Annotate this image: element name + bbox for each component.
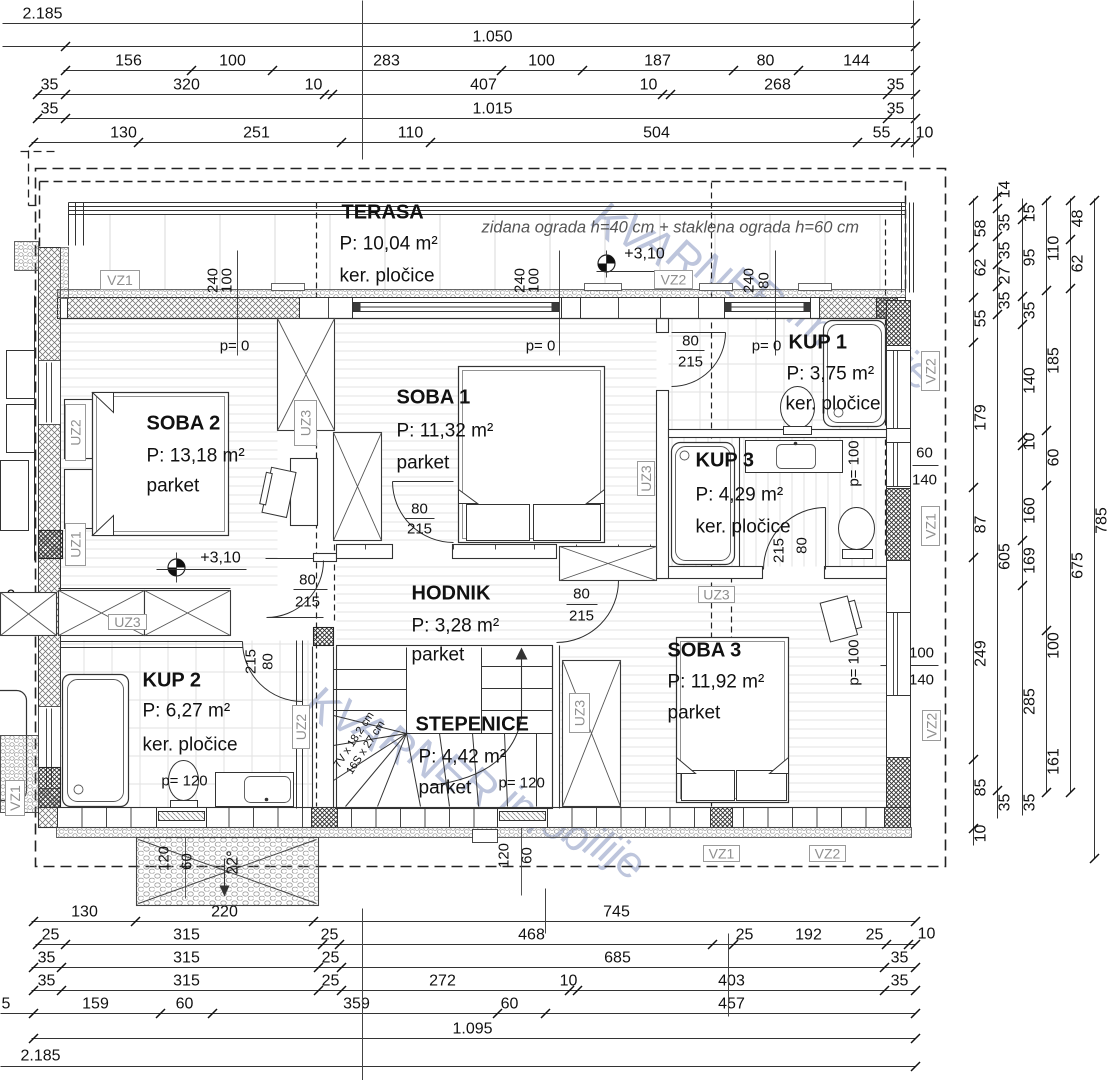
svg-text:80: 80 <box>573 586 590 603</box>
svg-text:KUP 3: KUP 3 <box>696 450 755 472</box>
svg-text:2.185: 2.185 <box>21 1048 61 1065</box>
svg-text:p= 100: p= 100 <box>846 639 863 685</box>
svg-text:315: 315 <box>173 927 200 944</box>
svg-text:HODNIK: HODNIK <box>412 583 491 605</box>
svg-text:STEPENICE: STEPENICE <box>416 714 529 736</box>
svg-text:100: 100 <box>219 53 246 70</box>
svg-text:P: 6,27 m²: P: 6,27 m² <box>143 701 231 722</box>
svg-text:130: 130 <box>110 125 137 142</box>
svg-text:215: 215 <box>243 649 260 674</box>
svg-text:25: 25 <box>42 927 60 944</box>
svg-text:35: 35 <box>891 950 909 967</box>
svg-text:60: 60 <box>519 847 536 864</box>
svg-text:22°: 22° <box>225 850 242 874</box>
svg-text:10: 10 <box>1022 433 1039 451</box>
svg-text:100: 100 <box>909 645 934 662</box>
svg-text:25: 25 <box>736 927 754 944</box>
svg-text:87: 87 <box>973 516 990 534</box>
svg-text:60: 60 <box>179 853 196 870</box>
svg-text:272: 272 <box>429 973 456 990</box>
svg-text:403: 403 <box>718 973 745 990</box>
svg-text:UZ3: UZ3 <box>703 587 730 603</box>
svg-text:675: 675 <box>1070 552 1087 579</box>
svg-text:100: 100 <box>528 53 555 70</box>
svg-text:1.015: 1.015 <box>472 101 512 118</box>
svg-text:parket: parket <box>419 778 473 799</box>
svg-text:UZ3: UZ3 <box>298 410 314 437</box>
svg-text:10: 10 <box>973 825 990 843</box>
svg-text:80: 80 <box>299 572 316 589</box>
svg-text:100: 100 <box>219 268 236 293</box>
svg-text:UZ1: UZ1 <box>68 531 84 558</box>
svg-text:160: 160 <box>1022 497 1039 524</box>
svg-text:407: 407 <box>470 77 497 94</box>
svg-text:27: 27 <box>997 267 1014 285</box>
svg-text:P: 4,29 m²: P: 4,29 m² <box>696 485 784 506</box>
svg-text:315: 315 <box>173 973 200 990</box>
svg-text:14: 14 <box>997 181 1014 199</box>
svg-text:+3,10: +3,10 <box>200 550 241 567</box>
svg-text:10: 10 <box>918 926 936 943</box>
svg-text:VZ1: VZ1 <box>7 785 23 811</box>
svg-text:VZ1: VZ1 <box>107 272 133 288</box>
svg-text:VZ2: VZ2 <box>661 272 687 288</box>
svg-text:169: 169 <box>1022 547 1039 574</box>
svg-text:P: 11,92 m²: P: 11,92 m² <box>668 672 765 693</box>
svg-text:ker. pločice: ker. pločice <box>340 266 435 287</box>
svg-text:ker. pločice: ker. pločice <box>143 735 238 756</box>
svg-text:100: 100 <box>1046 632 1063 659</box>
svg-text:80: 80 <box>411 501 428 518</box>
svg-text:80: 80 <box>756 272 773 289</box>
svg-text:TERASA: TERASA <box>342 202 424 224</box>
svg-text:283: 283 <box>373 53 400 70</box>
svg-text:35: 35 <box>997 794 1014 812</box>
svg-text:130: 130 <box>71 904 98 921</box>
svg-text:UZ3: UZ3 <box>638 465 654 492</box>
svg-text:P: 3,75 m²: P: 3,75 m² <box>787 364 875 385</box>
svg-text:785: 785 <box>1094 507 1111 534</box>
svg-text:p= 0: p= 0 <box>220 338 250 355</box>
svg-text:KUP 2: KUP 2 <box>143 670 202 692</box>
svg-text:35: 35 <box>38 973 56 990</box>
svg-text:25: 25 <box>322 973 340 990</box>
svg-text:144: 144 <box>843 53 870 70</box>
svg-text:UZ2: UZ2 <box>68 419 84 446</box>
svg-text:25: 25 <box>866 927 884 944</box>
svg-text:P: 3,28 m²: P: 3,28 m² <box>412 616 500 637</box>
svg-text:468: 468 <box>518 927 545 944</box>
svg-text:35: 35 <box>41 101 59 118</box>
svg-text:320: 320 <box>173 77 200 94</box>
svg-text:215: 215 <box>569 608 594 625</box>
svg-text:VZ2: VZ2 <box>815 846 841 862</box>
svg-text:10: 10 <box>916 125 934 142</box>
svg-text:ker. pločice: ker. pločice <box>786 394 881 415</box>
svg-text:120: 120 <box>156 846 173 871</box>
svg-text:10: 10 <box>640 77 658 94</box>
svg-text:745: 745 <box>603 904 630 921</box>
svg-text:100: 100 <box>526 268 543 293</box>
svg-text:359: 359 <box>343 996 370 1013</box>
svg-text:192: 192 <box>795 927 822 944</box>
svg-text:VZ2: VZ2 <box>924 712 940 738</box>
svg-text:140: 140 <box>909 672 934 689</box>
svg-text:35: 35 <box>1022 794 1039 812</box>
svg-text:62: 62 <box>973 259 990 277</box>
svg-text:p= 120: p= 120 <box>161 773 207 790</box>
svg-text:zidana ograda h=40 cm + stakle: zidana ograda h=40 cm + staklena ograda … <box>481 219 859 237</box>
svg-text:80: 80 <box>794 537 811 554</box>
svg-text:SOBA 2: SOBA 2 <box>147 413 221 435</box>
svg-text:+3,10: +3,10 <box>624 246 665 263</box>
svg-text:parket: parket <box>147 476 201 497</box>
svg-text:p= 0: p= 0 <box>526 338 556 355</box>
svg-text:P: 10,04 m²: P: 10,04 m² <box>340 234 438 255</box>
svg-text:685: 685 <box>604 950 631 967</box>
svg-text:60: 60 <box>916 445 933 462</box>
svg-text:35: 35 <box>997 292 1014 310</box>
svg-text:35: 35 <box>997 214 1014 232</box>
svg-text:62: 62 <box>1070 255 1087 273</box>
svg-text:35: 35 <box>891 973 909 990</box>
svg-text:p= 100: p= 100 <box>846 440 863 486</box>
svg-text:ker. pločice: ker. pločice <box>696 517 791 538</box>
svg-text:215: 215 <box>771 538 788 563</box>
svg-text:15: 15 <box>1022 205 1039 223</box>
svg-text:P: 13,18 m²: P: 13,18 m² <box>147 446 245 467</box>
svg-text:parket: parket <box>397 453 451 474</box>
svg-text:215: 215 <box>678 354 703 371</box>
svg-text:KUP 1: KUP 1 <box>789 332 848 354</box>
svg-text:1.095: 1.095 <box>452 1021 492 1038</box>
svg-text:215: 215 <box>295 594 320 611</box>
svg-text:UZ3: UZ3 <box>572 700 588 727</box>
svg-text:25: 25 <box>322 950 340 967</box>
svg-text:249: 249 <box>973 640 990 667</box>
svg-text:35: 35 <box>887 77 905 94</box>
svg-text:UZ2: UZ2 <box>293 714 309 741</box>
svg-text:60: 60 <box>501 996 519 1013</box>
svg-text:55: 55 <box>973 310 990 328</box>
svg-text:140: 140 <box>912 472 937 489</box>
svg-text:110: 110 <box>398 125 424 142</box>
svg-text:504: 504 <box>643 125 670 142</box>
svg-text:VZ1: VZ1 <box>923 513 939 539</box>
svg-text:35: 35 <box>38 950 56 967</box>
svg-text:35: 35 <box>887 101 905 118</box>
svg-text:315: 315 <box>173 950 200 967</box>
svg-text:120: 120 <box>496 843 513 868</box>
svg-text:UZ3: UZ3 <box>114 614 141 630</box>
svg-text:187: 187 <box>644 53 671 70</box>
svg-text:251: 251 <box>243 125 270 142</box>
svg-text:p= 120: p= 120 <box>499 775 545 792</box>
svg-text:457: 457 <box>718 996 745 1013</box>
svg-text:P: 4,42 m²: P: 4,42 m² <box>419 747 507 768</box>
svg-text:25: 25 <box>321 927 339 944</box>
svg-text:48: 48 <box>1070 210 1087 228</box>
svg-text:140: 140 <box>1022 367 1039 394</box>
svg-text:80: 80 <box>260 653 277 670</box>
svg-text:95: 95 <box>1022 249 1039 267</box>
svg-text:parket: parket <box>412 645 466 666</box>
svg-text:p= 0: p= 0 <box>752 338 782 355</box>
svg-text:parket: parket <box>668 703 722 724</box>
svg-text:80: 80 <box>757 53 775 70</box>
svg-text:215: 215 <box>407 521 432 538</box>
svg-text:605: 605 <box>997 543 1014 570</box>
svg-text:P: 11,32 m²: P: 11,32 m² <box>397 421 494 442</box>
svg-text:10: 10 <box>305 77 323 94</box>
svg-text:35: 35 <box>41 77 59 94</box>
svg-text:VZ1: VZ1 <box>709 846 735 862</box>
svg-text:185: 185 <box>1046 347 1063 374</box>
svg-text:VZ2: VZ2 <box>923 358 939 384</box>
svg-text:268: 268 <box>764 77 791 94</box>
svg-text:10: 10 <box>560 973 578 990</box>
svg-text:58: 58 <box>973 220 990 238</box>
svg-text:179: 179 <box>973 404 990 431</box>
svg-text:85: 85 <box>973 779 990 797</box>
svg-text:60: 60 <box>176 996 194 1013</box>
svg-text:35: 35 <box>997 242 1014 260</box>
svg-text:110: 110 <box>1046 236 1063 262</box>
svg-text:1.050: 1.050 <box>472 29 512 46</box>
svg-text:60: 60 <box>1046 449 1063 467</box>
svg-text:5: 5 <box>2 996 11 1013</box>
svg-text:159: 159 <box>82 996 109 1013</box>
svg-text:2.185: 2.185 <box>23 6 63 23</box>
svg-text:55: 55 <box>873 125 891 142</box>
svg-text:156: 156 <box>115 53 142 70</box>
svg-text:35: 35 <box>1022 302 1039 320</box>
svg-text:161: 161 <box>1046 748 1063 775</box>
svg-text:285: 285 <box>1022 688 1039 715</box>
svg-text:SOBA 3: SOBA 3 <box>668 640 742 662</box>
svg-text:SOBA 1: SOBA 1 <box>397 387 471 409</box>
svg-text:80: 80 <box>682 333 699 350</box>
